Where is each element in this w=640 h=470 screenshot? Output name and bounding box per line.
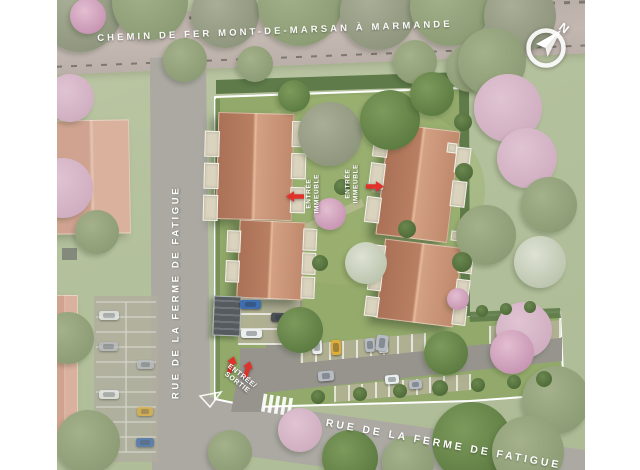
building-3: [236, 220, 305, 301]
car: [331, 340, 342, 356]
terrace: [364, 296, 380, 318]
blossom-tree: [447, 288, 469, 310]
building-entrance-label-2: ENTRÉE IMMEUBLE: [344, 154, 359, 214]
bush: [312, 255, 328, 271]
label-line: ENTRÉE: [305, 164, 313, 224]
car: [136, 438, 154, 447]
tree: [521, 177, 577, 233]
bush: [398, 220, 416, 238]
blossom-tree: [345, 242, 387, 284]
label-line: ENTRÉE: [344, 154, 352, 214]
bush: [471, 378, 485, 392]
street-label-left: RUE DE LA FERME DE FATIGUE: [171, 153, 182, 433]
tree: [237, 46, 273, 82]
bush: [454, 113, 472, 131]
tree: [277, 307, 323, 353]
garden-furniture: [446, 142, 457, 153]
entrance-arrow-right-icon: [366, 181, 384, 192]
terrace: [302, 228, 317, 251]
car: [137, 360, 154, 369]
terrace: [226, 230, 241, 253]
compass-north-icon: N: [520, 18, 576, 74]
tree: [208, 430, 252, 470]
bush: [507, 375, 521, 389]
terrace: [225, 260, 240, 283]
tree: [424, 331, 468, 375]
car: [409, 379, 423, 389]
bush: [393, 384, 407, 398]
blossom-tree: [278, 408, 322, 452]
bush: [353, 387, 367, 401]
building-1: [216, 112, 295, 221]
bush: [452, 252, 472, 272]
bush: [536, 371, 552, 387]
terrace: [203, 163, 219, 189]
terrace: [449, 180, 467, 208]
car: [365, 338, 376, 353]
car: [99, 311, 119, 320]
tree: [56, 410, 120, 470]
right-margin: [585, 0, 640, 470]
car: [99, 342, 118, 351]
entrance-arrow-left-icon: [286, 191, 304, 202]
car: [240, 300, 261, 309]
tree: [75, 210, 119, 254]
tree: [410, 72, 454, 116]
car: [385, 374, 400, 384]
bush: [476, 305, 488, 317]
terrace: [203, 195, 219, 221]
car: [137, 407, 153, 416]
tree: [163, 38, 207, 82]
car: [318, 370, 335, 381]
blossom-tree: [490, 330, 534, 374]
label-line: IMMEUBLE: [352, 154, 360, 214]
bush: [311, 390, 325, 404]
car: [375, 334, 389, 351]
blossom-tree: [514, 236, 566, 288]
label-line: IMMEUBLE: [313, 164, 321, 224]
car: [241, 329, 262, 338]
building-4: [375, 239, 462, 328]
building-entrance-label-1: ENTRÉE IMMEUBLE: [305, 164, 320, 224]
car: [99, 390, 119, 399]
bush: [455, 163, 473, 181]
site-plan-map: CHEMIN DE FER MONT-DE-MARSAN À MARMANDE …: [0, 0, 640, 470]
tree: [278, 80, 310, 112]
bush: [524, 301, 536, 313]
bush: [500, 303, 512, 315]
terrace: [300, 276, 315, 299]
terrace: [204, 131, 220, 157]
bike-shelter: [212, 296, 241, 337]
terrace: [364, 196, 382, 224]
left-margin: [0, 0, 57, 470]
bush: [432, 380, 448, 396]
terrace: [291, 153, 307, 179]
